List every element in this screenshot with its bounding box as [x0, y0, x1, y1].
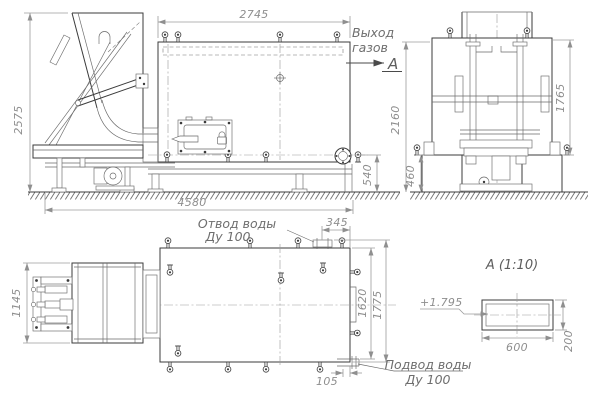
dim-boiler-length: 2745: [239, 8, 268, 21]
hydraulic-cylinder: [75, 74, 148, 106]
furnace-door: [172, 117, 232, 154]
hopper-mark: [99, 32, 110, 44]
technical-drawing: 2745 2575 4580 540 Выход газов А: [0, 0, 600, 400]
ground-line-side: [28, 192, 400, 200]
water-outlet-label-line2: Ду 100: [205, 229, 251, 244]
water-inlet-annotation: Подвод воды Ду 100: [358, 357, 472, 387]
dim-feeder-width: 1145: [10, 288, 23, 317]
detail-a-view: А (1:10) 600 200 +1.795: [420, 258, 575, 354]
chimney-flange: [335, 148, 361, 164]
dim-overall-height: 2160: [389, 105, 402, 134]
water-outlet-fitting: [313, 238, 332, 249]
dim-casing-height: 1765: [554, 83, 567, 112]
dim-duct-width-group: 600: [482, 332, 553, 354]
dim-outlet-offset: 345: [326, 216, 348, 229]
side-view: 2745 2575 4580 540 Выход газов А: [12, 8, 402, 214]
plan-view: 1145 Отвод воды Ду 100 345 1620 1775: [10, 216, 472, 388]
elevation-mark-group: +1.795: [420, 296, 488, 314]
dim-foundation-height-group: 460: [404, 155, 424, 192]
dim-width-inner: 1620: [356, 288, 369, 317]
gas-outlet-label-line2: газов: [352, 40, 388, 55]
dim-casing-height-group: 1765: [552, 40, 574, 155]
feeder-mechanism: [33, 32, 175, 192]
dim-inlet-offset: 105: [316, 375, 338, 388]
dim-duct-height-group: 200: [555, 300, 575, 352]
detail-title: А (1:10): [485, 258, 538, 273]
duct-section: [474, 293, 561, 337]
feeder-plan: [31, 263, 160, 343]
gas-outlet-annotation: Выход газов: [352, 25, 394, 55]
elevation-mark: +1.795: [420, 296, 463, 309]
grate-drive-assembly: [460, 140, 532, 191]
boiler-front-body: [414, 12, 570, 155]
dim-width-outer: 1775: [371, 290, 384, 319]
dim-foundation-height: 460: [404, 165, 417, 187]
dim-duct-height: 200: [562, 330, 575, 352]
dim-flange-height: 540: [361, 164, 374, 186]
ground-line-front: [410, 192, 588, 200]
dim-boiler-length-group: 2745: [158, 8, 350, 38]
boiler-base: [148, 164, 352, 192]
water-inlet-label-line2: Ду 100: [405, 372, 451, 387]
dim-flange-height-group: 540: [356, 155, 381, 192]
dim-duct-width: 600: [506, 341, 528, 354]
dim-overall-length: 4580: [177, 196, 206, 209]
feeder-cylinders: [31, 286, 73, 323]
dim-total-height: 2575: [12, 105, 25, 134]
view-direction-letter: А: [387, 55, 398, 73]
water-inlet-label-line1: Подвод воды: [385, 357, 472, 372]
view-direction-arrow: А: [346, 55, 402, 73]
gas-outlet-label-line1: Выход: [352, 25, 394, 40]
front-view: 2160 460 1765: [389, 12, 588, 200]
drawing-sheet: 2745 2575 4580 540 Выход газов А: [0, 0, 600, 400]
